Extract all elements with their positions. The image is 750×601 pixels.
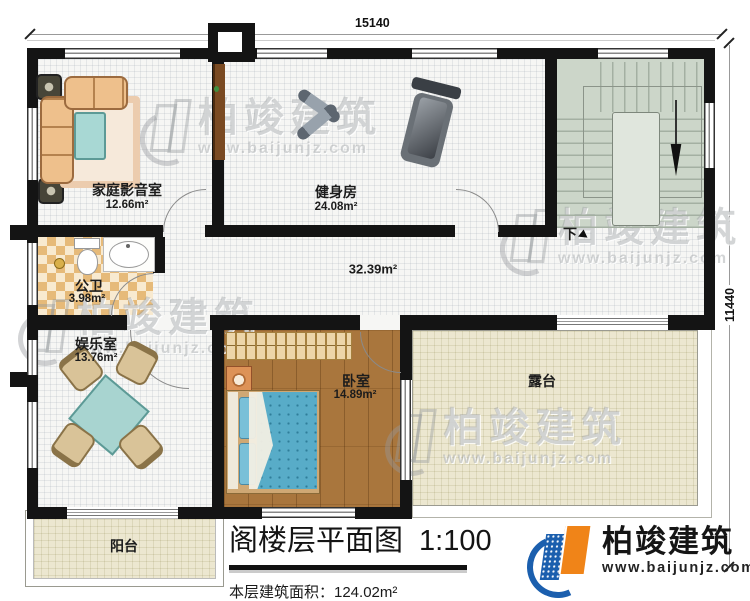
plan-title: 阁楼层平面图 [229, 517, 403, 559]
wall [27, 225, 163, 237]
room-label-balcony: 阳台 [110, 536, 138, 556]
room-label-terrace: 露台 [528, 371, 556, 391]
top-dimension-line [30, 34, 722, 35]
floor-drain [54, 258, 65, 269]
wall [205, 225, 455, 237]
company-logo: 柏竣建筑 www.baijunjz.com [527, 524, 750, 594]
window [65, 48, 180, 59]
room-area-bedroom: 14.89m² [334, 389, 377, 401]
stair-well [612, 112, 660, 226]
stairs-down-label: 下 [563, 224, 577, 244]
wall [704, 168, 715, 330]
wall [210, 315, 360, 330]
window [412, 48, 497, 59]
window [257, 48, 327, 59]
wall [27, 315, 127, 330]
plan-scale: 1:100 [419, 525, 492, 558]
floor-area-text: 本层建筑面积：124.02m² [229, 581, 492, 601]
wall-stub [10, 225, 27, 240]
wall [704, 48, 715, 103]
toilet-bowl [77, 249, 98, 275]
floor-plan: 15140 11440 柏竣建筑www.baijunjz.com 柏竣建筑www… [0, 0, 750, 601]
wall [27, 507, 67, 519]
wall [212, 318, 224, 519]
wall-stub [10, 372, 27, 387]
room-area-home-theater: 12.66m² [106, 199, 149, 211]
window [598, 48, 668, 59]
chimney-flue [218, 32, 242, 52]
sliding-door [67, 509, 178, 516]
headboard [228, 392, 238, 489]
wall [27, 375, 38, 402]
right-dimension-label: 11440 [723, 285, 737, 325]
sofa [64, 76, 128, 110]
wall [400, 330, 412, 380]
company-website: www.baijunjz.com [602, 560, 750, 576]
room-label-entertainment: 娱乐室 [75, 334, 117, 354]
terrace-floor [412, 330, 698, 506]
room-label-bedroom: 卧室 [342, 371, 370, 391]
bed [226, 390, 320, 494]
toilet-tank [74, 238, 100, 249]
wall [545, 59, 557, 237]
room-area-gym: 24.08m² [315, 201, 358, 213]
window [704, 103, 715, 168]
coffee-table [74, 112, 106, 160]
room-area-public-bath: 3.98m² [69, 293, 105, 305]
window [27, 340, 38, 375]
window [27, 243, 38, 305]
sliding-door [557, 318, 668, 325]
door-panel [213, 64, 225, 160]
room-label-home-theater: 家庭影音室 [92, 180, 162, 200]
plant-icon [214, 86, 219, 92]
room-label-gym: 健身房 [315, 182, 357, 202]
title-block: 阁楼层平面图 1:100 本层建筑面积：124.02m² [229, 517, 492, 601]
wall [400, 315, 557, 330]
room-area-entertainment: 13.76m² [75, 352, 118, 364]
wall [497, 48, 598, 59]
wall [327, 48, 412, 59]
title-underline [229, 565, 467, 570]
window [400, 380, 411, 480]
window [27, 402, 38, 468]
wall [668, 315, 715, 330]
wardrobe [226, 332, 352, 360]
hallway-area: 32.39m² [349, 262, 397, 277]
company-logo-icon [527, 524, 593, 594]
stair-arrow-stem [675, 100, 677, 146]
faucet-icon [126, 244, 130, 248]
company-name: 柏竣建筑 [602, 524, 750, 560]
top-dimension-label: 15140 [352, 16, 393, 30]
window [27, 108, 38, 180]
